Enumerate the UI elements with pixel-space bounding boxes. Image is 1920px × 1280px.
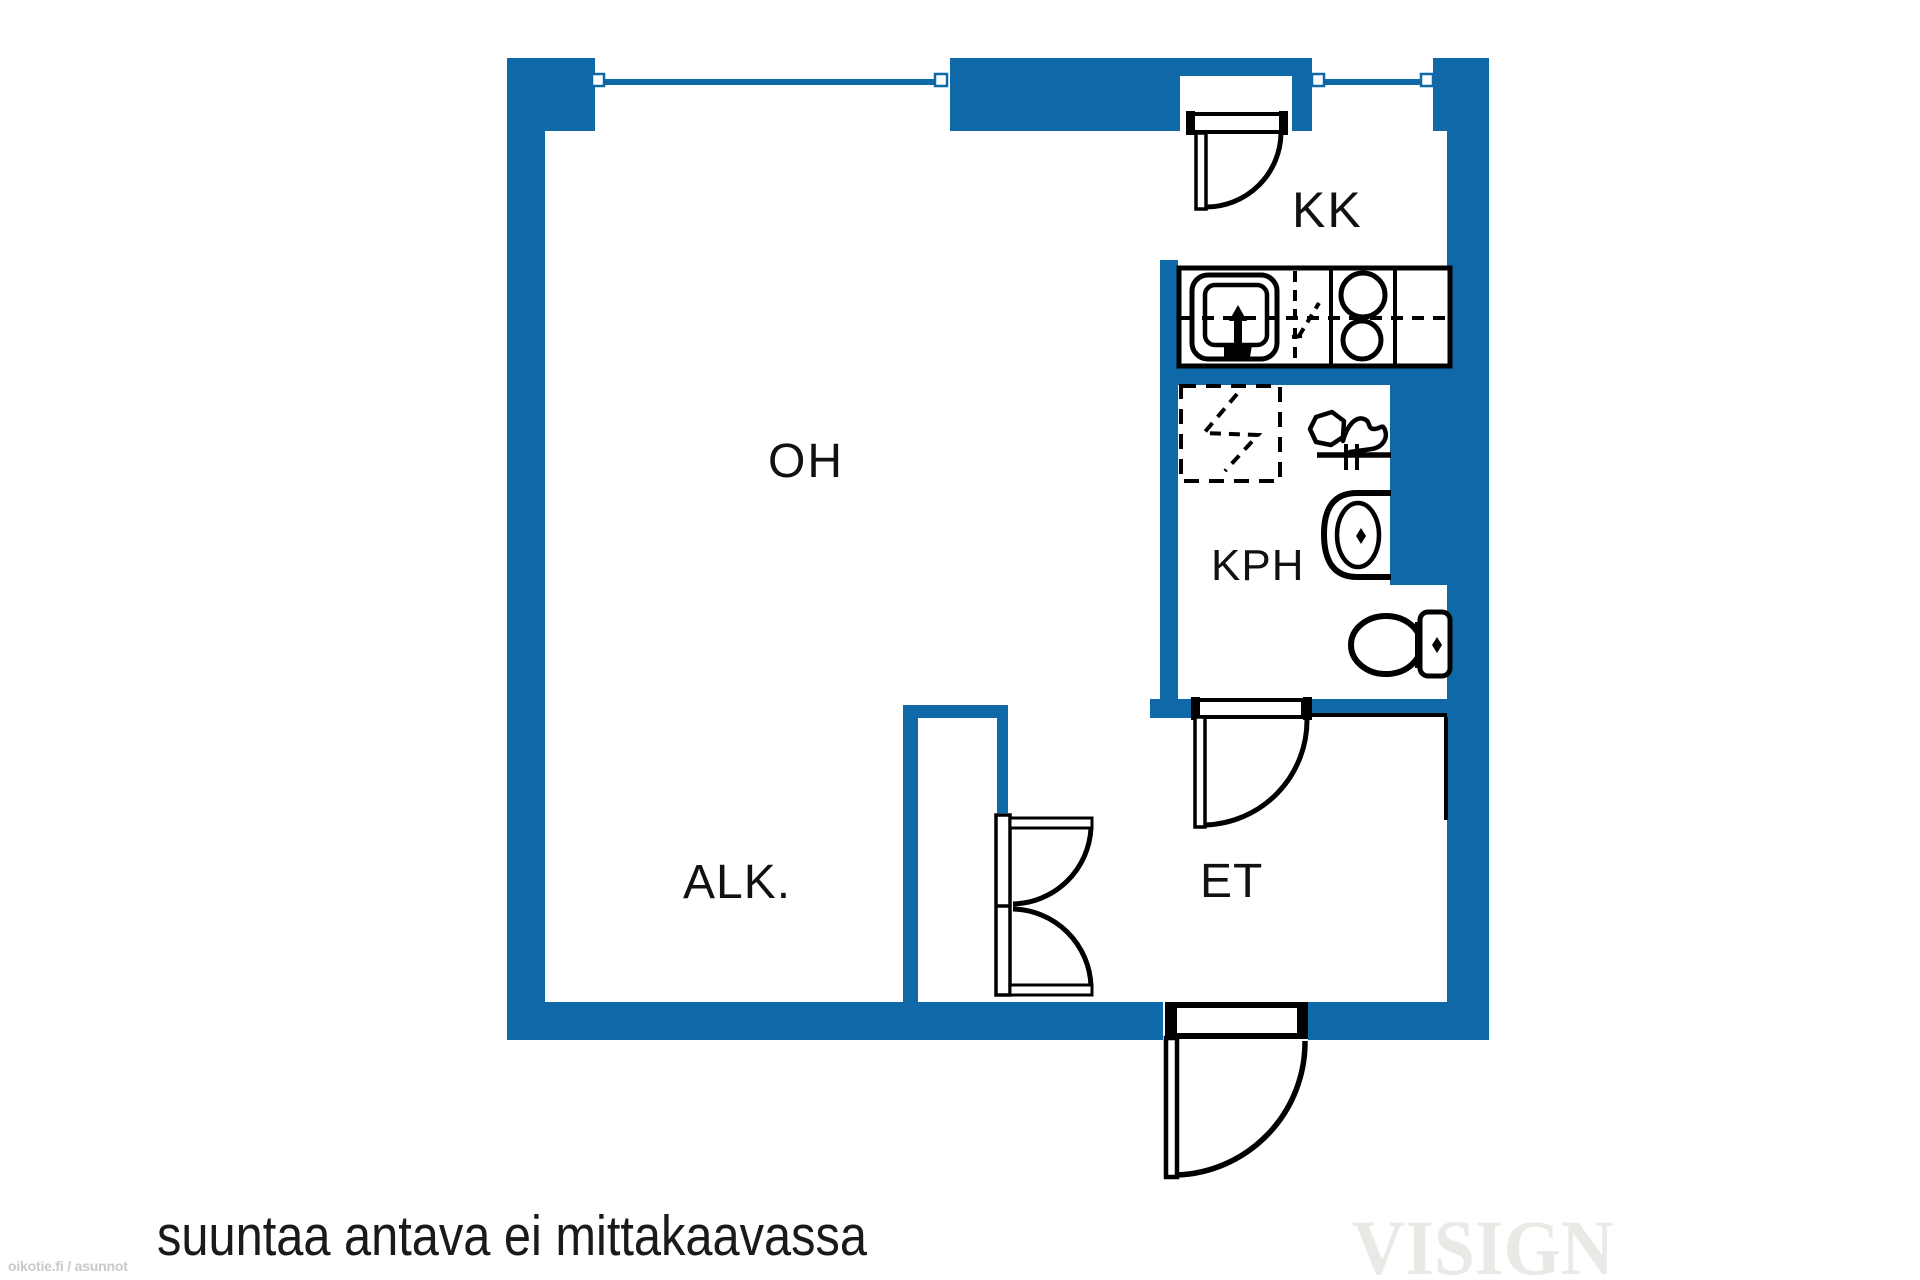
wall-between-door-window	[1292, 58, 1312, 131]
room-label-kph: KPH	[1211, 541, 1304, 590]
oikotie-source-watermark: oikotie.fi / asunnot	[8, 1258, 128, 1274]
wall-under-counter	[1160, 366, 1447, 385]
wall-bottom-right	[1308, 1002, 1489, 1040]
partition-alk-top	[903, 705, 1008, 718]
washbasin-drain-dot	[1356, 528, 1366, 544]
door-slab	[1197, 700, 1303, 717]
window-glass-line	[598, 79, 941, 85]
washing-connection	[1310, 412, 1391, 470]
washing-connection-hook	[1343, 418, 1386, 452]
window-kitchen	[1312, 74, 1433, 86]
door-jamb-cap	[1297, 1002, 1308, 1039]
shower-drain-arrow	[1204, 394, 1258, 471]
door-leaf	[1196, 133, 1206, 209]
wall-right	[1447, 58, 1489, 1040]
window-end-post	[1421, 74, 1433, 86]
room-label-oh: OH	[768, 435, 844, 488]
door-jamb-cap	[1165, 1002, 1176, 1039]
door-swing-arc	[1205, 719, 1307, 825]
window-living-room	[592, 74, 947, 86]
wall-kph-et-left	[1150, 699, 1193, 718]
shower	[1181, 386, 1280, 481]
door-swing-arc	[1013, 828, 1091, 904]
window-end-post	[1312, 74, 1324, 86]
partition-alk-right	[997, 718, 1008, 813]
front-door	[1165, 1002, 1308, 1177]
toilet	[1351, 612, 1450, 676]
kk-exterior-door	[1186, 111, 1288, 209]
washbasin	[1324, 493, 1391, 577]
wall-kph-et-right	[1310, 699, 1447, 715]
kitchen-counter	[1179, 268, 1450, 366]
door-swing-arc	[1177, 1041, 1305, 1175]
wall-edge-lines	[1310, 715, 1447, 820]
window-glass-line	[1318, 79, 1428, 85]
visign-watermark: VISIGN	[1352, 1204, 1614, 1280]
washing-connection-circle	[1310, 412, 1344, 445]
door-swing-arc	[1206, 133, 1281, 207]
partition-alk-left	[903, 705, 918, 1002]
kph-door	[1191, 697, 1312, 827]
door-leaf	[1195, 717, 1205, 827]
scale-disclaimer-caption: suuntaa antava ei mittakaavassa	[157, 1204, 867, 1268]
wall-top-left-corner	[507, 58, 595, 131]
closet-double-door	[996, 815, 1092, 995]
door-leaf-bottom	[1010, 985, 1092, 995]
wall-top-middle	[950, 58, 1180, 131]
floor-plan-drawing: OH KK KPH ALK. ET suuntaa antava ei mitt…	[0, 0, 1920, 1280]
window-end-post	[935, 74, 947, 86]
floor-plan-page: OH KK KPH ALK. ET suuntaa antava ei mitt…	[0, 0, 1920, 1280]
door-jamb-cap	[1279, 111, 1288, 135]
room-label-alk: ALK.	[683, 856, 791, 909]
door-jamb-cap	[1303, 697, 1312, 720]
door-slab	[1192, 114, 1282, 132]
window-end-post	[592, 74, 604, 86]
wall-left	[507, 58, 545, 1040]
door-leaf	[1166, 1038, 1177, 1177]
wall-above-kk-door	[1180, 58, 1292, 76]
door-leaf-top	[1010, 818, 1092, 828]
duct-right-of-bath	[1390, 385, 1447, 585]
door-slab	[1174, 1005, 1301, 1036]
dishwasher-space-tick	[1292, 336, 1302, 337]
wall-bottom-left	[507, 1002, 1163, 1040]
room-label-et: ET	[1200, 855, 1263, 908]
toilet-bowl	[1351, 616, 1421, 674]
door-swing-arc	[1013, 909, 1091, 986]
room-label-kk: KK	[1292, 182, 1363, 238]
door-jamb-cap	[1186, 111, 1195, 135]
wall-kitchen-bath-west	[1160, 260, 1178, 718]
